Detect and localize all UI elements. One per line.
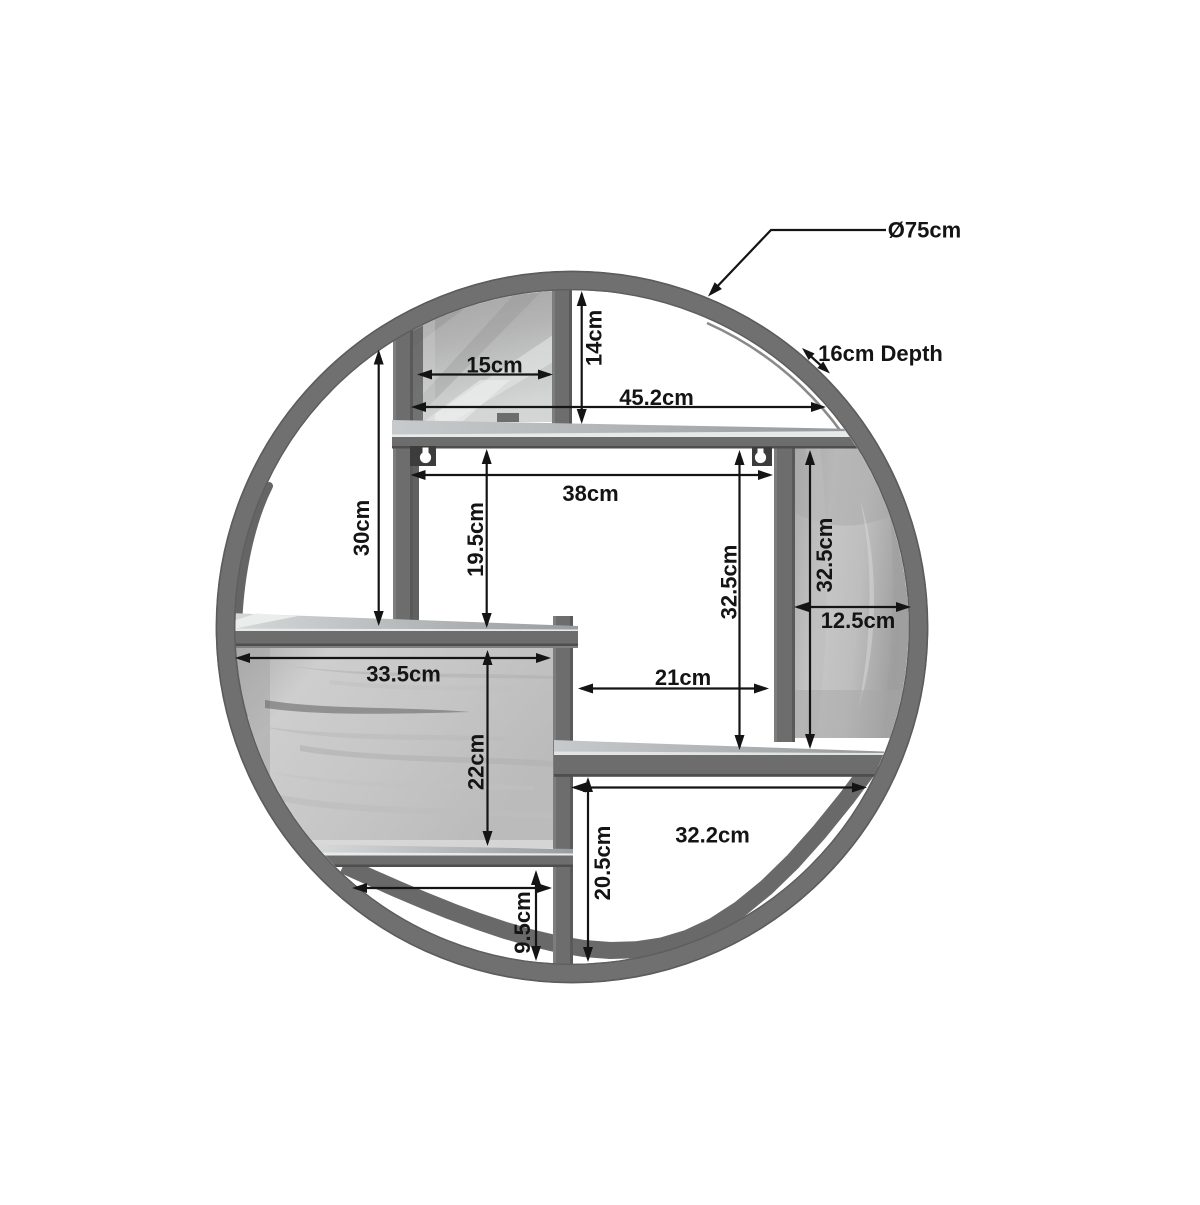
svg-text:15cm: 15cm — [466, 353, 522, 378]
svg-text:20.5cm: 20.5cm — [590, 826, 615, 901]
svg-text:32.5cm: 32.5cm — [717, 545, 742, 620]
svg-text:30cm: 30cm — [349, 500, 374, 556]
svg-text:14cm: 14cm — [582, 310, 607, 366]
svg-text:33.5cm: 33.5cm — [366, 662, 441, 687]
svg-text:21cm: 21cm — [655, 665, 711, 690]
svg-text:32.2cm: 32.2cm — [675, 823, 750, 848]
svg-text:32.5cm: 32.5cm — [812, 518, 837, 593]
svg-text:16cm Depth: 16cm Depth — [818, 341, 943, 366]
svg-text:19.5cm: 19.5cm — [463, 502, 488, 577]
svg-text:9.5cm: 9.5cm — [510, 891, 535, 953]
svg-text:22cm: 22cm — [464, 734, 489, 790]
svg-text:38cm: 38cm — [562, 481, 618, 506]
svg-text:Ø75cm: Ø75cm — [888, 218, 961, 243]
svg-text:12.5cm: 12.5cm — [821, 608, 896, 633]
svg-text:45.2cm: 45.2cm — [619, 385, 694, 410]
